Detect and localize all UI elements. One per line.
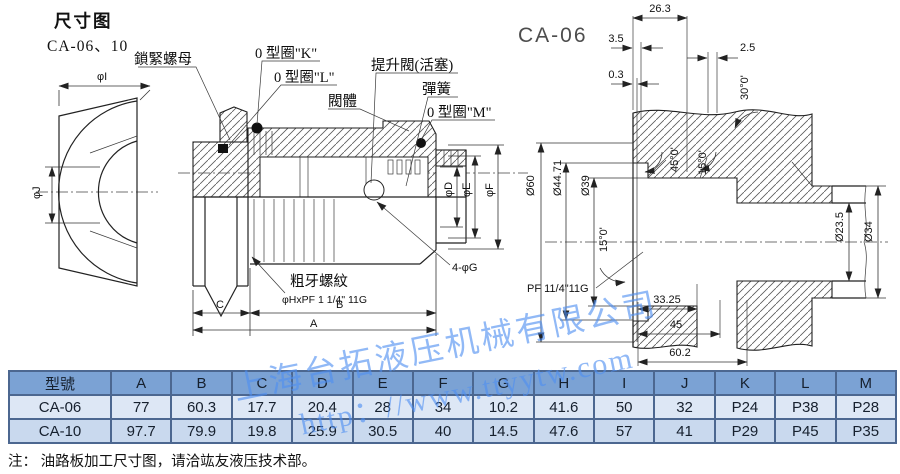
dim-dia-60: Ø60: [525, 175, 537, 196]
cavity-hatch-bottom-left: [633, 306, 697, 348]
table-header-cell: G: [473, 371, 533, 395]
table-cell: 30.5: [353, 419, 413, 443]
table-header-cell: A: [111, 371, 171, 395]
cavity-angle-dims: 30°0' 45°0' 15°0' 15°0': [598, 75, 758, 282]
oring-l-dot: [218, 144, 228, 153]
table-cell: 41.6: [534, 395, 594, 419]
table-header-model: 型號: [9, 371, 111, 395]
table-row: CA-1097.779.919.825.930.54014.547.65741P…: [9, 419, 896, 443]
label-spring: 彈簧: [422, 81, 451, 98]
table-cell: 47.6: [534, 419, 594, 443]
dim-phi-d: φD: [443, 182, 455, 197]
dim-a: A: [310, 318, 318, 330]
table-header-cell: C: [232, 371, 292, 395]
footnote: 注： 油路板加工尺寸图，请洽竑友液压技术部。: [8, 450, 316, 471]
table-cell: 50: [594, 395, 654, 419]
table-cell: 28: [353, 395, 413, 419]
table-header-cell: D: [292, 371, 352, 395]
table-header-cell: B: [171, 371, 231, 395]
label-oring-k: 0 型圈"K": [255, 45, 317, 62]
table-header-cell: L: [775, 371, 835, 395]
dim-c: C: [216, 299, 224, 311]
label-poppet: 提升閥(活塞): [371, 56, 453, 74]
table-cell: 41: [654, 419, 714, 443]
cavity-dia-dims-left: Ø60 Ø44.71 Ø39: [525, 143, 648, 342]
dim-dia-34: Ø34: [863, 221, 875, 242]
table-header-cell: M: [836, 371, 897, 395]
dim-angle-15: 15°0': [697, 150, 709, 175]
dim-2-5: 2.5: [740, 42, 755, 54]
nut-collar-section: [220, 107, 247, 142]
dimension-table-head: 型號ABCDEFGHIJKLM: [9, 371, 896, 395]
table-cell: 10.2: [473, 395, 533, 419]
label-coarse-thread: 粗牙螺紋: [290, 273, 348, 290]
dim-phi-f: φF: [484, 183, 496, 197]
dim-phi-i: φI: [97, 71, 107, 83]
table-cell: P28: [836, 395, 897, 419]
table-cell: P35: [836, 419, 897, 443]
table-cell: 32: [654, 395, 714, 419]
table-cell: 19.8: [232, 419, 292, 443]
label-lock-nut: 鎖緊螺母: [134, 51, 192, 68]
table-row: CA-067760.317.720.4283410.241.65032P24P3…: [9, 395, 896, 419]
front-view: φI φJ: [31, 71, 158, 286]
dim-3-5: 3.5: [608, 33, 623, 45]
technical-drawing: φI φJ: [0, 0, 900, 370]
dim-26-3: 26.3: [649, 3, 670, 15]
label-valve-body: 閥體: [328, 93, 357, 110]
table-cell: 60.3: [171, 395, 231, 419]
table-cell: 34: [413, 395, 473, 419]
label-thread-spec: φHxPF 1 1/4" 11G: [282, 294, 367, 306]
dim-dia-23-5: Ø23.5: [834, 212, 846, 242]
label-oring-m: 0 型圈"M": [427, 104, 492, 121]
table-header-cell: I: [594, 371, 654, 395]
table-cell: 40: [413, 419, 473, 443]
cavity-hatch-bottom-right: [737, 281, 832, 350]
dim-45: 45: [670, 319, 682, 331]
dim-angle-45: 45°0': [669, 147, 681, 172]
dim-dia-39: Ø39: [580, 175, 592, 196]
thread-ticks-bottom: [254, 199, 334, 262]
label-holes-4g: 4-φG: [452, 262, 477, 274]
dimension-table: 型號ABCDEFGHIJKLM CA-067760.317.720.428341…: [8, 370, 897, 444]
dim-60-2: 60.2: [669, 347, 690, 359]
table-cell: P29: [715, 419, 775, 443]
dim-phi-e: φE: [461, 183, 473, 197]
dim-b: B: [336, 299, 343, 311]
section-view: 鎖緊螺母 0 型圈"K" 0 型圈"L" 閥體 提升閥(活塞) 彈簧 0 型圈"…: [134, 45, 528, 336]
dim-dia-44-71: Ø44.71: [552, 160, 564, 196]
table-cell: 57: [594, 419, 654, 443]
table-cell: P45: [775, 419, 835, 443]
cavity-hatch-top: [633, 110, 832, 203]
label-cavity-thread: PF 11/4"11G: [527, 283, 589, 295]
table-cell: 14.5: [473, 419, 533, 443]
table-cell-model: CA-10: [9, 419, 111, 443]
dimension-table-body: CA-067760.317.720.4283410.241.65032P24P3…: [9, 395, 896, 443]
dim-angle-15b: 15°0': [598, 227, 610, 252]
table-cell: 20.4: [292, 395, 352, 419]
oring-k-dot: [252, 123, 263, 134]
table-cell: P38: [775, 395, 835, 419]
table-header-cell: E: [353, 371, 413, 395]
dim-phi-j: φJ: [31, 186, 43, 199]
table-cell: 97.7: [111, 419, 171, 443]
table-header-cell: K: [715, 371, 775, 395]
table-cell: P24: [715, 395, 775, 419]
table-header-cell: H: [534, 371, 594, 395]
label-oring-l: 0 型圈"L": [274, 69, 335, 86]
dim-0-3: 0.3: [608, 69, 623, 81]
dim-33-25: 33.25: [653, 294, 681, 306]
cavity-view: 26.3 3.5 0.3 2.5 30°0' 45°0' 15°0' 15°0': [525, 3, 888, 366]
table-cell: 17.7: [232, 395, 292, 419]
table-header-cell: J: [654, 371, 714, 395]
dim-angle-30: 30°0': [739, 75, 751, 100]
table-cell: 79.9: [171, 419, 231, 443]
table-cell: 25.9: [292, 419, 352, 443]
table-cell-model: CA-06: [9, 395, 111, 419]
table-header-cell: F: [413, 371, 473, 395]
table-cell: 77: [111, 395, 171, 419]
